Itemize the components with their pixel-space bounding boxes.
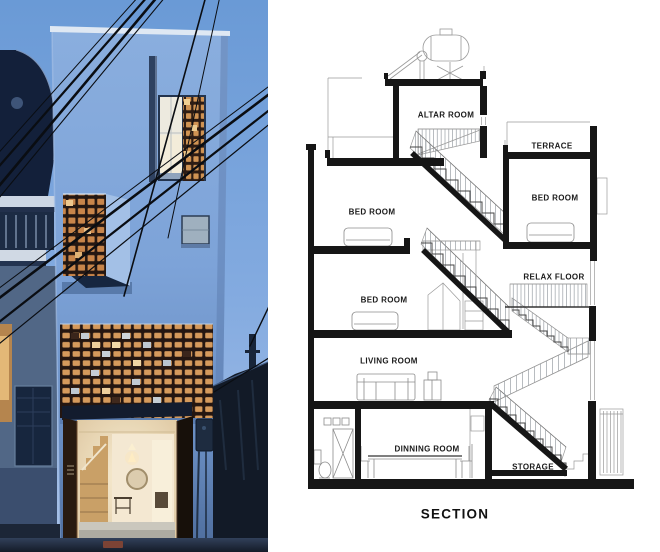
mid-window [181, 216, 210, 248]
doormat [103, 541, 123, 548]
label-altar-room: ALTAR ROOM [418, 111, 475, 120]
page: ALTAR ROOM TERRACE BED ROOM BED ROOM REL… [0, 0, 660, 552]
bathroom-fixtures [314, 418, 353, 478]
entrance-door-left [63, 418, 77, 551]
label-dinning-room: DINNING ROOM [394, 445, 459, 454]
label-relax-floor: RELAX FLOOR [523, 273, 584, 282]
solar-water-heater [388, 29, 469, 80]
section-drawing [300, 0, 660, 552]
label-living-room: LIVING ROOM [360, 357, 418, 366]
bed-right [527, 223, 574, 242]
label-bed-room-top-left: BED ROOM [349, 208, 396, 217]
bed-mid-left [352, 312, 398, 330]
house-photo [0, 0, 268, 552]
entrance [62, 402, 193, 552]
round-window [11, 97, 23, 109]
section-title: SECTION [421, 507, 489, 522]
label-storage: STORAGE [512, 463, 554, 472]
label-bed-room-mid-left: BED ROOM [361, 296, 408, 305]
label-bed-room-right: BED ROOM [532, 194, 579, 203]
label-terrace: TERRACE [531, 142, 572, 151]
entrance-door-right [177, 416, 193, 552]
side-table [424, 372, 441, 400]
corner-window [158, 95, 206, 181]
dark-wall-right [213, 362, 268, 552]
slit-window [149, 56, 157, 182]
bed-top-left [344, 228, 392, 246]
sofa [357, 374, 415, 400]
